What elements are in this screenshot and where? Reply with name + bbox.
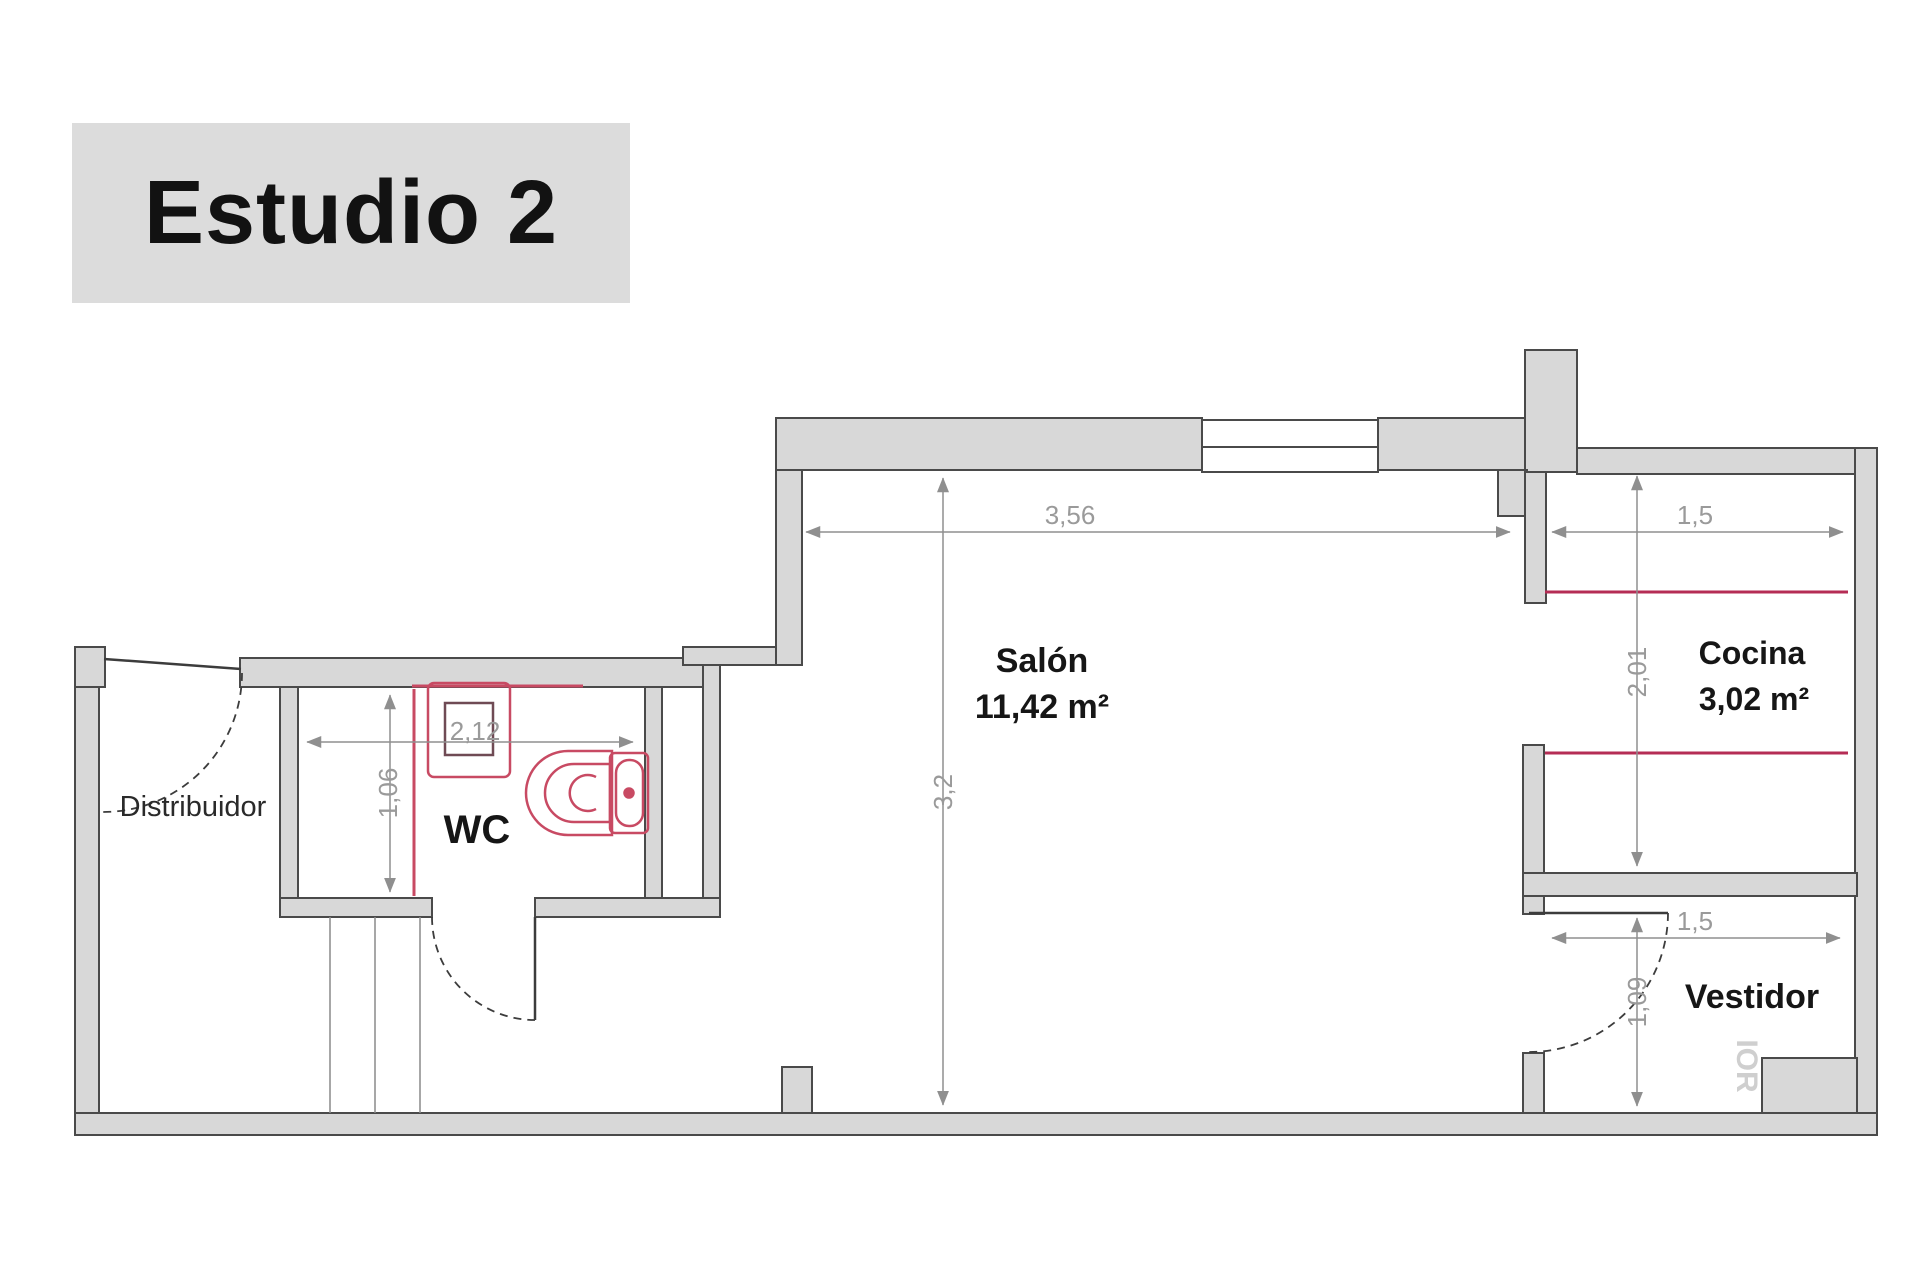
- dim-label-salon-width: 3,56: [1045, 500, 1096, 530]
- wall-right-outer: [1855, 448, 1877, 1135]
- wall-cocina-top: [1577, 448, 1877, 474]
- wall-vestidor-left-upper: [1523, 896, 1544, 914]
- label-vestidor: Vestidor: [1685, 978, 1819, 1016]
- wall-wc-bottom-right: [535, 898, 720, 917]
- toilet-flush-crescent: [570, 775, 596, 811]
- wc-door-arc: [432, 917, 535, 1020]
- watermark-text: IOR: [1730, 1039, 1763, 1093]
- wall-salon-bottom-pillar: [782, 1067, 812, 1113]
- wall-wc-left: [280, 687, 298, 898]
- wall-vestidor-corner-block: [1762, 1058, 1857, 1115]
- dim-label-salon-depth: 3,2: [928, 774, 958, 810]
- entrance-door-leaf: [104, 659, 241, 669]
- wall-salon-top-right: [1378, 418, 1527, 470]
- salon-window: [1202, 420, 1378, 472]
- label-wc: WC: [444, 808, 511, 852]
- dimension-lines: [307, 476, 1843, 1106]
- wall-vestidor-left-lower: [1523, 1053, 1544, 1115]
- cocina-counter-lines: [1545, 592, 1848, 753]
- label-salon: Salón: [996, 642, 1089, 680]
- wall-wc-bottom-left: [280, 898, 432, 917]
- dim-label-vestidor-width: 1,5: [1677, 906, 1713, 936]
- hall-steps: [330, 917, 420, 1113]
- dim-label-wc-depth: 1,06: [373, 768, 403, 819]
- wall-salon-top-left: [776, 418, 1202, 470]
- toilet-bowl-rim: [545, 764, 610, 822]
- floor-plan-page: Estudio 2: [0, 0, 1920, 1280]
- wall-notch-block: [1498, 470, 1527, 516]
- dim-label-wc-width: 2,12: [450, 716, 501, 746]
- label-cocina: Cocina: [1699, 635, 1806, 671]
- wall-divider-upper: [1525, 472, 1546, 603]
- wc-fixtures: [412, 683, 648, 896]
- wall-entry-corner-stub: [75, 647, 105, 687]
- label-distribuidor: Distribuidor: [120, 791, 267, 823]
- wall-left-outer: [75, 647, 99, 1135]
- doors-group: [103, 659, 1668, 1052]
- wall-pillar-chimney: [1525, 350, 1577, 472]
- wall-cocina-bottom: [1523, 873, 1857, 896]
- wall-wc-right: [703, 665, 720, 898]
- label-salon-area: 11,42 m²: [975, 688, 1109, 726]
- dim-label-vestidor-depth: 1,09: [1622, 977, 1652, 1028]
- label-cocina-area: 3,02 m²: [1699, 681, 1809, 717]
- dim-label-cocina-width: 1,5: [1677, 500, 1713, 530]
- dim-label-cocina-depth: 2,01: [1622, 647, 1652, 698]
- floorplan-drawing: 2,12 1,06 3,56 3,2 1,5 2,01 1,5 1,09 Dis…: [0, 0, 1920, 1280]
- toilet-cistern-button: [625, 789, 634, 798]
- wall-bottom-outer: [75, 1113, 1877, 1135]
